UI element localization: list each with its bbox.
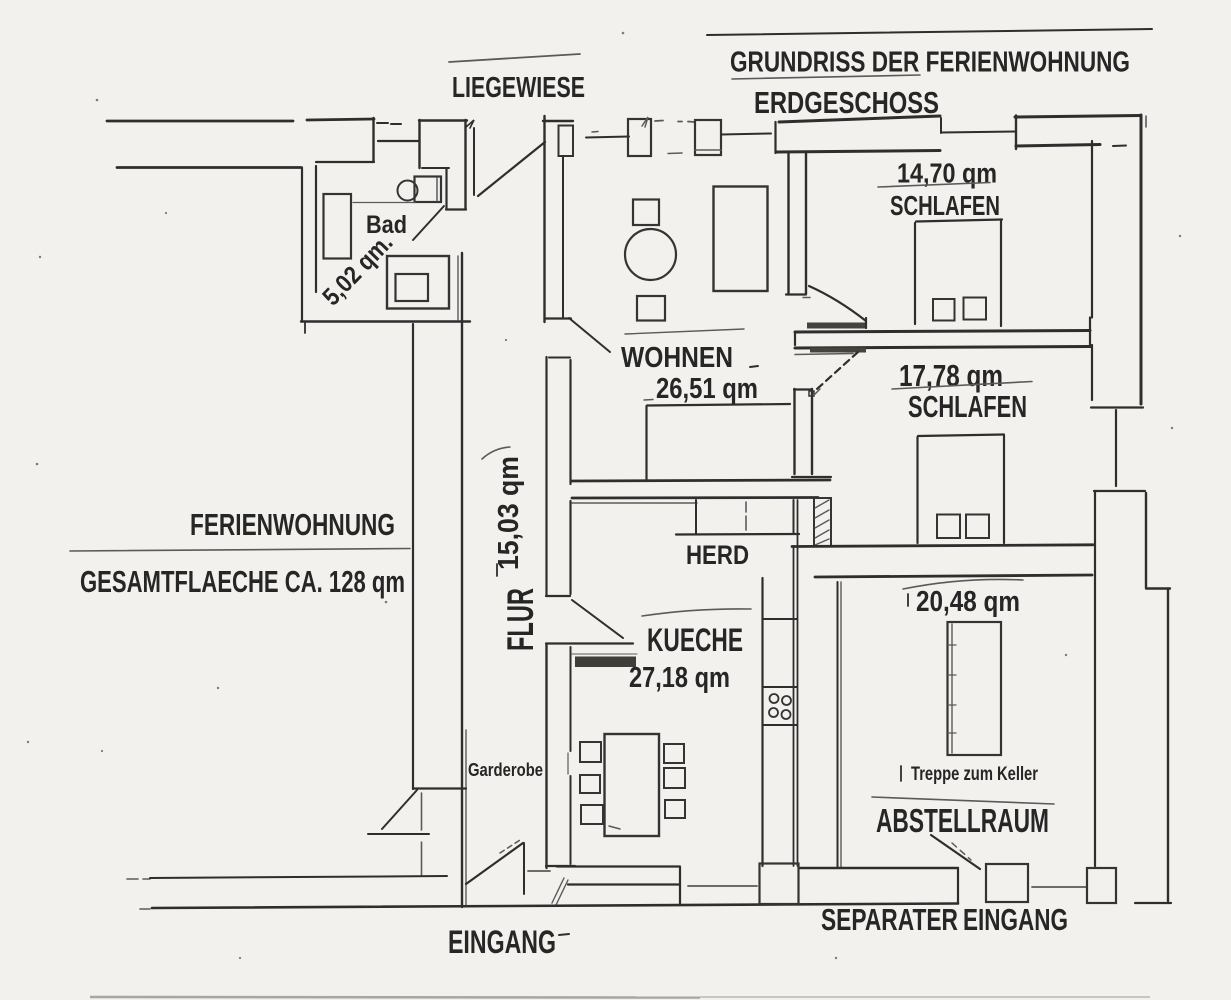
svg-text:LIEGEWIESE: LIEGEWIESE (452, 72, 585, 104)
svg-text:15,03 qm: 15,03 qm (493, 456, 525, 570)
svg-text:20,48 qm: 20,48 qm (916, 586, 1020, 618)
svg-text:Garderobe: Garderobe (468, 760, 543, 780)
svg-text:ERDGESCHOSS: ERDGESCHOSS (754, 85, 939, 120)
svg-text:GESAMTFLAECHE CA. 128 qm: GESAMTFLAECHE CA. 128 qm (80, 564, 405, 599)
svg-text:FERIENWOHNUNG: FERIENWOHNUNG (190, 507, 395, 542)
svg-text:KUECHE: KUECHE (647, 622, 743, 658)
svg-text:FLUR: FLUR (500, 588, 541, 651)
svg-text:SEPARATER: SEPARATER (821, 903, 958, 937)
svg-text:27,18 qm: 27,18 qm (629, 662, 730, 694)
svg-text:SCHLAFEN: SCHLAFEN (908, 390, 1027, 424)
svg-text:SCHLAFEN: SCHLAFEN (890, 190, 1000, 221)
svg-text:Treppe zum Keller: Treppe zum Keller (911, 763, 1038, 785)
svg-text:EINGANG: EINGANG (963, 903, 1068, 937)
svg-text:EINGANG: EINGANG (448, 924, 556, 960)
svg-text:GRUNDRISS DER FERIENWOHNUNG: GRUNDRISS DER FERIENWOHNUNG (730, 47, 1130, 79)
svg-text:26,51 qm: 26,51 qm (656, 373, 758, 405)
svg-text:ABSTELLRAUM: ABSTELLRAUM (876, 803, 1049, 840)
svg-text:HERD: HERD (686, 540, 749, 570)
svg-text:WOHNEN: WOHNEN (621, 342, 733, 374)
